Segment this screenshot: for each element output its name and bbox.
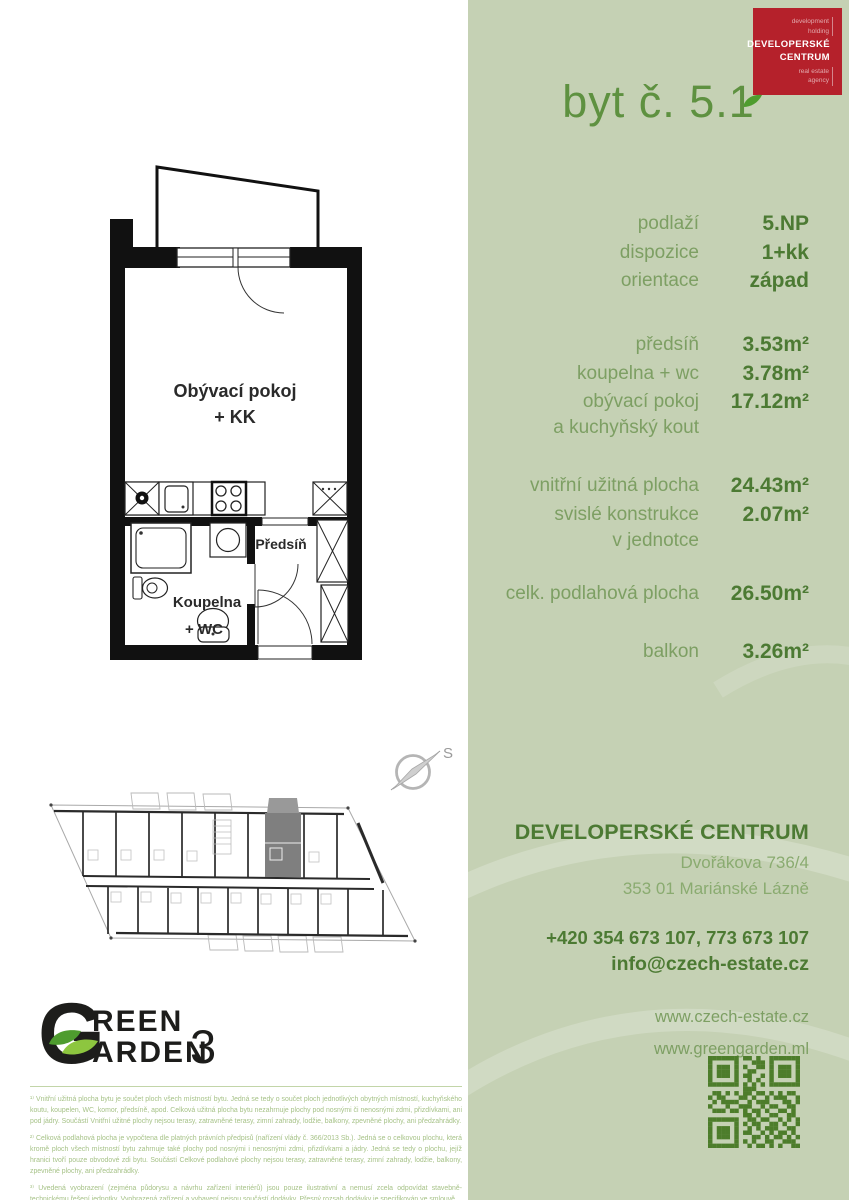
param-row-vnitrni-plocha: vnitřní užitná plocha 24.43m² xyxy=(499,473,809,499)
door-swings xyxy=(255,564,312,644)
param-row-celkova-plocha: celk. podlahová plocha 26.50m² xyxy=(499,581,809,607)
footnote-1: ¹⁾ Vnitřní užitná plocha bytu je součet … xyxy=(30,1094,462,1127)
email-address: info@czech-estate.cz xyxy=(515,953,809,976)
website-czech-estate: www.czech-estate.cz xyxy=(515,1008,809,1027)
toilet xyxy=(133,577,142,599)
apartment-floorplan: Obývací pokoj + KK Předsíň Koupelna + WC xyxy=(95,157,387,662)
hallway-closet xyxy=(317,520,348,642)
balcony-window xyxy=(177,248,290,313)
building-overview-plan xyxy=(38,788,462,960)
kitchen-counter xyxy=(125,482,347,515)
param-row-podlazi: podlaží 5.NP xyxy=(499,211,809,237)
param-row-svisle-konstrukce: svislé konstrukce v jednotce 2.07m² xyxy=(499,502,809,553)
phone-numbers: +420 354 673 107, 773 673 107 xyxy=(515,927,809,949)
legal-footnotes: ¹⁾ Vnitřní užitná plocha bytu je součet … xyxy=(30,1086,462,1200)
param-row-balkon: balkon 3.26m² xyxy=(499,639,809,665)
param-row-predsin: předsíň 3.53m² xyxy=(499,332,809,358)
entry-threshold xyxy=(258,646,312,659)
kitchen-sink xyxy=(165,486,188,512)
contact-block: DEVELOPERSKÉ CENTRUM Dvořákova 736/4 353… xyxy=(515,820,809,1059)
info-panel: developmentholding DEVELOPERSKÉCENTRUM r… xyxy=(468,0,849,1200)
logo-number-3: 3 xyxy=(190,1019,216,1074)
compass-north-label: S xyxy=(443,745,453,762)
balconies xyxy=(131,793,343,952)
footnote-2: ²⁾ Celková podlahová plocha je vypočtena… xyxy=(30,1133,462,1177)
company-address: Dvořákova 736/4 353 01 Mariánské Lázně xyxy=(515,850,809,903)
company-name: DEVELOPERSKÉ CENTRUM xyxy=(515,820,809,845)
param-row-obyvaci-pokoj: obývací pokoj a kuchyňský kout 17.12m² xyxy=(499,389,809,440)
living-room-label-2: + KK xyxy=(214,407,256,427)
flyer-page: Obývací pokoj + KK Předsíň Koupelna + WC… xyxy=(0,0,849,1200)
passage-threshold xyxy=(262,518,308,525)
agency-logo-name: DEVELOPERSKÉCENTRUM xyxy=(747,39,833,64)
hallway-label: Předsíň xyxy=(255,536,306,552)
footnote-3: ³⁾ Uvedená vyobrazení (zejména půdorysu … xyxy=(30,1183,462,1200)
bathroom-label: Koupelna xyxy=(173,594,242,611)
living-room-label: Obývací pokoj xyxy=(173,381,296,401)
highlighted-unit xyxy=(265,798,301,877)
logo-tagline-top: developmentholding xyxy=(792,17,833,36)
param-row-dispozice: dispozice 1+kk xyxy=(499,240,809,266)
balcony-outline xyxy=(157,167,318,257)
qr-code xyxy=(708,1056,800,1148)
bathroom-label-2: + WC xyxy=(185,621,223,638)
unit-parameters: podlaží 5.NP dispozice 1+kk orientace zá… xyxy=(499,211,809,668)
param-row-koupelna: koupelna + wc 3.78m² xyxy=(499,361,809,387)
unit-title: byt č. 5.1 xyxy=(468,76,849,128)
greengarden-logo: G REEN ARDEN 3 xyxy=(38,1000,278,1088)
param-row-orientace: orientace západ xyxy=(499,268,809,294)
logo-text-reen: REEN xyxy=(92,1005,183,1039)
